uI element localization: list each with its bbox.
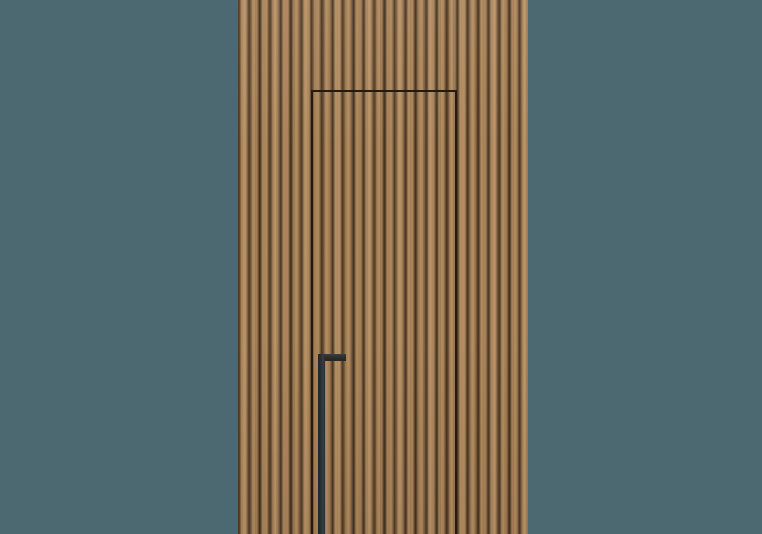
door-handle-bar xyxy=(318,354,325,534)
concealed-door-outline xyxy=(311,90,457,534)
studio-background xyxy=(0,0,762,534)
wood-slat-panel xyxy=(238,0,528,534)
